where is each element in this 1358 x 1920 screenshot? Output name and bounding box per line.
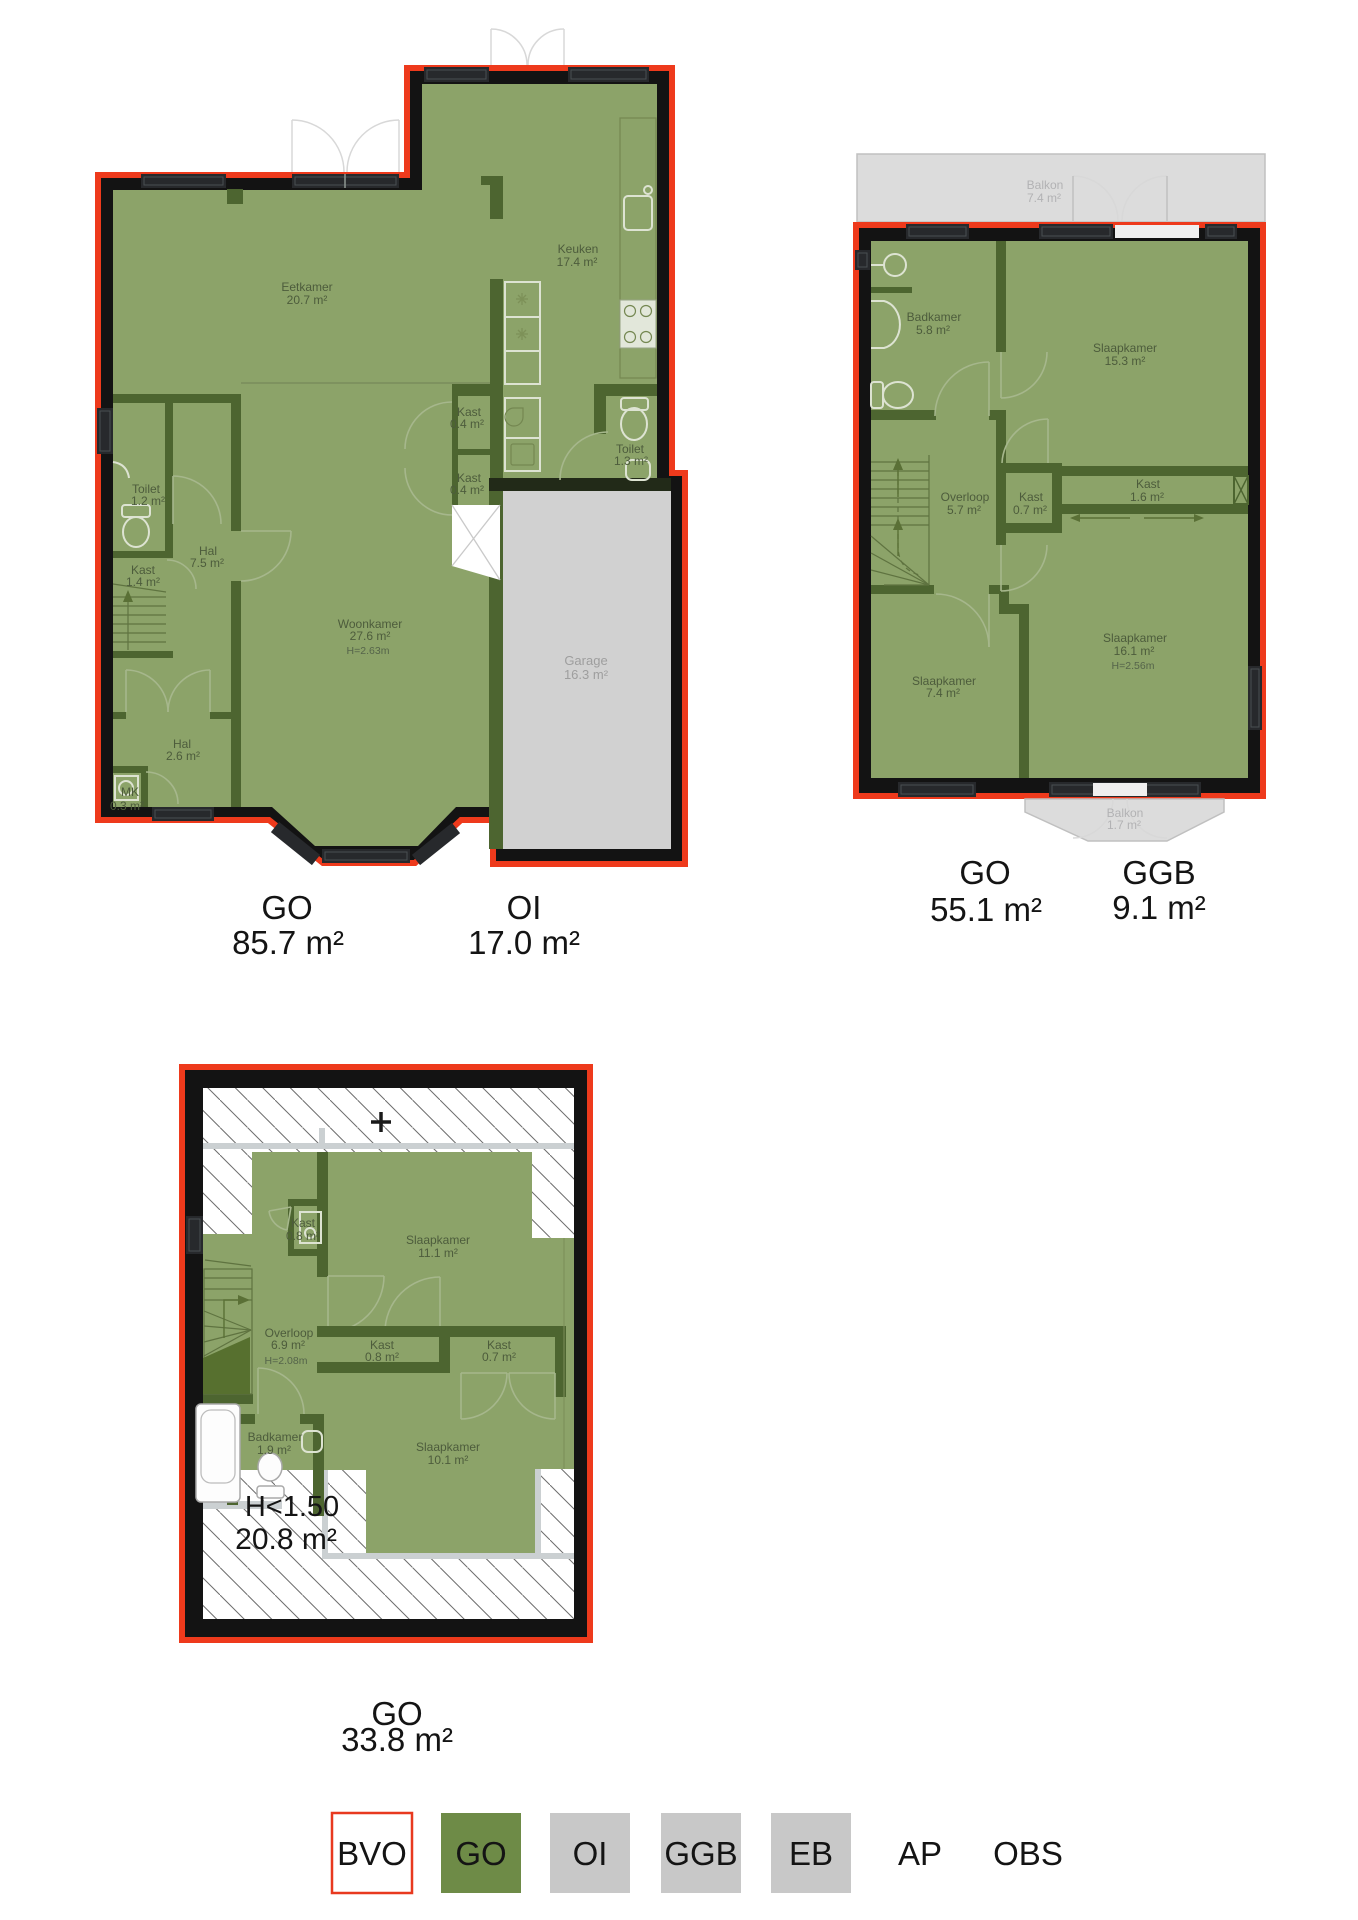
svg-text:2.6 m²: 2.6 m²: [166, 749, 200, 763]
svg-text:85.7 m²: 85.7 m²: [232, 924, 344, 961]
svg-text:GO: GO: [261, 889, 312, 926]
svg-text:7.4 m²: 7.4 m²: [926, 686, 960, 700]
svg-text:11.1 m²: 11.1 m²: [418, 1246, 458, 1260]
svg-text:GO: GO: [959, 854, 1010, 891]
svg-text:Badkamer: Badkamer: [248, 1430, 303, 1444]
svg-text:16.3 m²: 16.3 m²: [564, 667, 609, 682]
svg-text:17.4 m²: 17.4 m²: [557, 255, 598, 269]
svg-text:Eetkamer: Eetkamer: [281, 280, 332, 294]
svg-text:0.3 m²: 0.3 m²: [110, 799, 144, 813]
svg-text:27.6 m²: 27.6 m²: [350, 629, 391, 643]
svg-text:MK: MK: [121, 785, 139, 799]
svg-text:H=2.63m: H=2.63m: [347, 645, 390, 657]
svg-text:OI: OI: [573, 1835, 608, 1872]
svg-text:7.5 m²: 7.5 m²: [190, 556, 224, 570]
svg-text:GO: GO: [455, 1835, 506, 1872]
svg-text:0.7 m²: 0.7 m²: [482, 1350, 516, 1364]
svg-text:OI: OI: [507, 889, 542, 926]
svg-text:6.9 m²: 6.9 m²: [271, 1338, 305, 1352]
svg-text:1.9 m²: 1.9 m²: [257, 1443, 291, 1457]
svg-text:H=2.08m: H=2.08m: [265, 1355, 308, 1367]
svg-text:0.4 m²: 0.4 m²: [450, 483, 484, 497]
svg-text:AP: AP: [898, 1835, 942, 1872]
svg-text:16.1 m²: 16.1 m²: [1114, 644, 1155, 658]
svg-text:BVO: BVO: [337, 1835, 407, 1872]
svg-text:Badkamer: Badkamer: [907, 310, 962, 324]
svg-text:55.1 m²: 55.1 m²: [930, 891, 1042, 928]
svg-text:17.0 m²: 17.0 m²: [468, 924, 580, 961]
svg-text:0.7 m²: 0.7 m²: [1013, 503, 1047, 517]
svg-text:EB: EB: [789, 1835, 833, 1872]
svg-text:1.2 m²: 1.2 m²: [131, 494, 165, 508]
svg-text:5.7 m²: 5.7 m²: [947, 503, 981, 517]
svg-text:1.3 m²: 1.3 m²: [614, 454, 648, 468]
svg-text:Balkon: Balkon: [1027, 178, 1064, 192]
svg-text:20.7 m²: 20.7 m²: [287, 293, 328, 307]
svg-text:OBS: OBS: [993, 1835, 1063, 1872]
svg-text:10.1 m²: 10.1 m²: [428, 1453, 469, 1467]
svg-text:Kast: Kast: [1136, 477, 1161, 491]
svg-text:0.4 m²: 0.4 m²: [450, 417, 484, 431]
svg-text:Slaapkamer: Slaapkamer: [406, 1233, 470, 1247]
svg-text:9.1 m²: 9.1 m²: [1112, 889, 1206, 926]
svg-text:20.8 m²: 20.8 m²: [235, 1523, 337, 1556]
svg-text:Slaapkamer: Slaapkamer: [416, 1440, 480, 1454]
svg-text:33.8 m²: 33.8 m²: [341, 1721, 453, 1758]
svg-text:1.4 m²: 1.4 m²: [126, 575, 160, 589]
svg-text:GGB: GGB: [664, 1835, 737, 1872]
svg-text:1.7 m²: 1.7 m²: [1107, 818, 1141, 832]
svg-text:5.8 m²: 5.8 m²: [916, 323, 950, 337]
svg-text:Garage: Garage: [564, 653, 607, 668]
svg-text:1.6 m²: 1.6 m²: [1130, 490, 1164, 504]
svg-text:Overloop: Overloop: [941, 490, 990, 504]
svg-text:GGB: GGB: [1122, 854, 1195, 891]
svg-text:Kast: Kast: [291, 1216, 316, 1230]
svg-text:Keuken: Keuken: [558, 242, 599, 256]
svg-text:7.4 m²: 7.4 m²: [1027, 191, 1061, 205]
svg-text:Slaapkamer: Slaapkamer: [1093, 341, 1157, 355]
svg-text:H<1.50: H<1.50: [245, 1491, 339, 1523]
svg-text:0.8 m²: 0.8 m²: [286, 1229, 320, 1243]
svg-text:15.3 m²: 15.3 m²: [1105, 354, 1146, 368]
svg-text:Kast: Kast: [1019, 490, 1044, 504]
svg-text:0.8 m²: 0.8 m²: [365, 1350, 399, 1364]
svg-text:Slaapkamer: Slaapkamer: [1103, 631, 1167, 645]
svg-text:H=2.56m: H=2.56m: [1112, 660, 1155, 672]
